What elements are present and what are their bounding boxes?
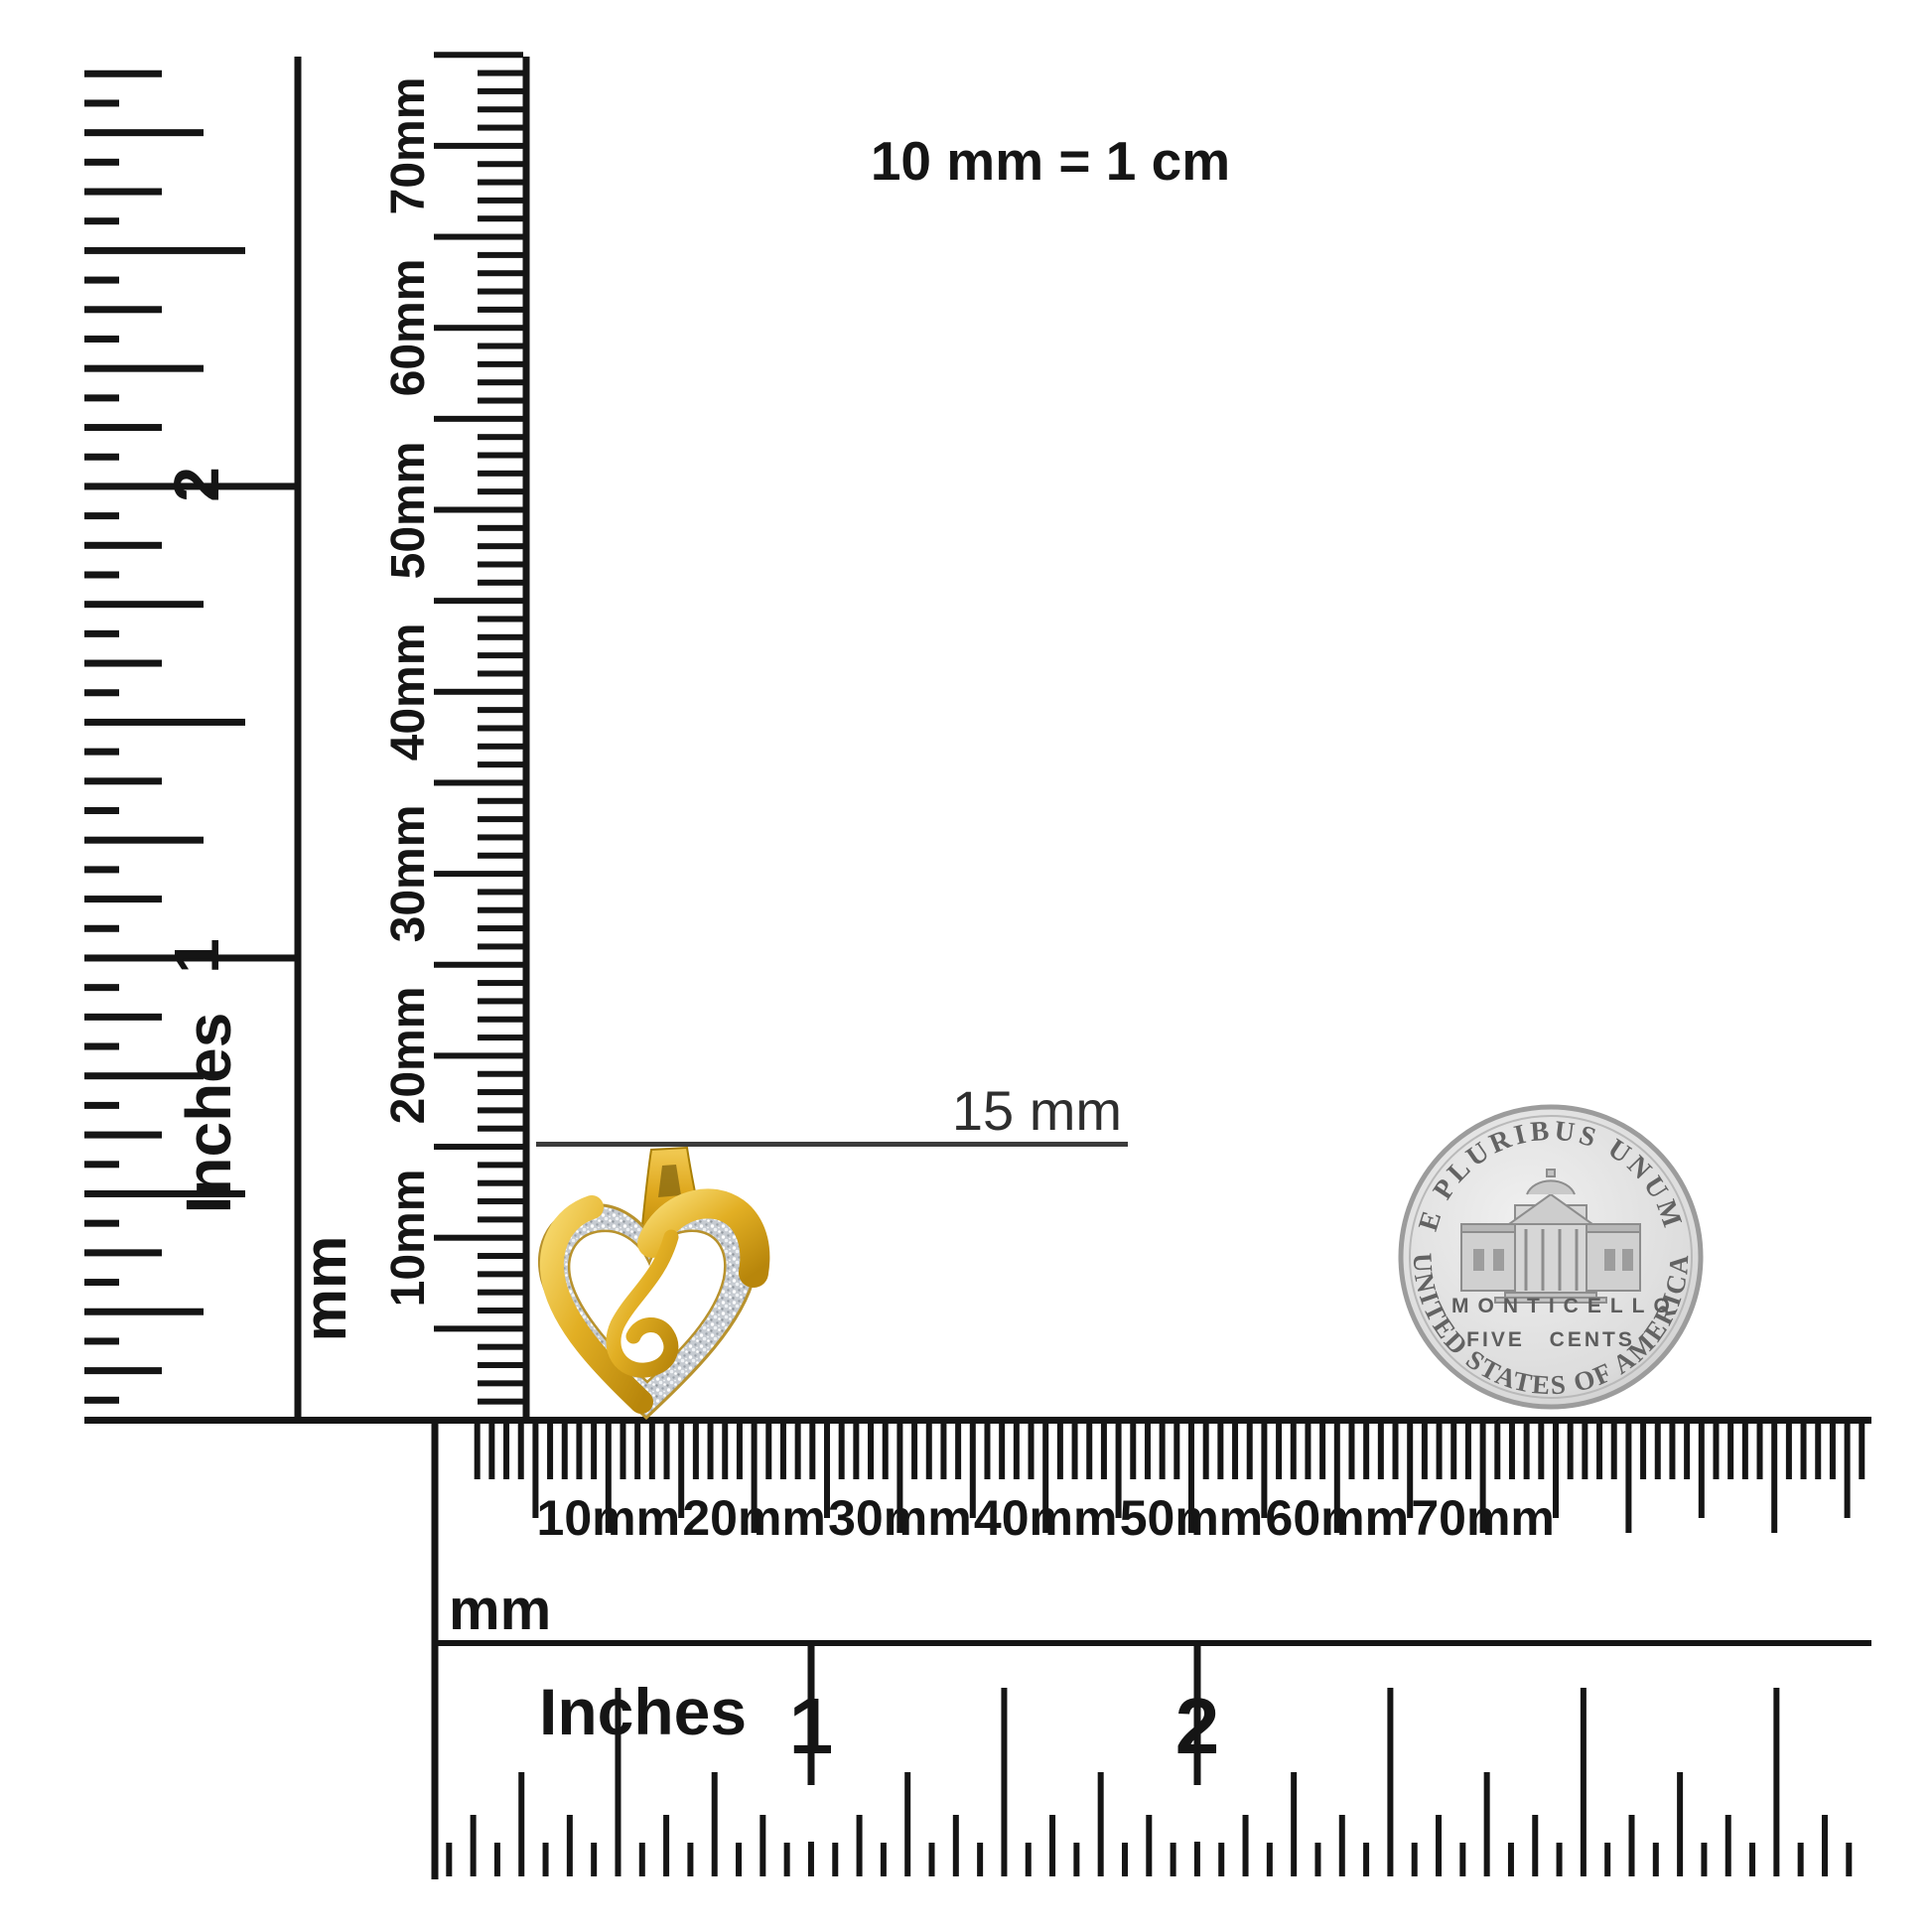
vertical-mm-ruler-tick-label: 60mm (384, 253, 434, 402)
heart-pendant-photo (539, 1148, 757, 1418)
vertical-inch-ruler-unit-label: Inches (178, 984, 239, 1242)
vertical-inch-ruler-number-2: 2 (165, 445, 228, 524)
vertical-mm-ruler-tick-label: 30mm (384, 799, 434, 948)
bottom-inch-ruler-number-2: 2 (1128, 1681, 1267, 1772)
pendant-size-annotation: 15 mm (923, 1078, 1122, 1143)
bottom-inch-ruler-number-1: 1 (742, 1681, 881, 1772)
vertical-mm-ruler-tick-label: 50mm (384, 436, 434, 585)
coin-denomination-label: FIVE CENTS (1451, 1328, 1650, 1352)
measurement-graphics: E PLURIBUS UNUM UNITED STATES OF AMERICA (0, 0, 1932, 1932)
vertical-mm-ruler-tick-label: 10mm (384, 1164, 434, 1312)
vertical-mm-ruler-tick-label: 70mm (384, 71, 434, 220)
bottom-mm-ruler-tick-label: 10mm (524, 1489, 693, 1547)
nickel-coin-photo: E PLURIBUS UNUM UNITED STATES OF AMERICA (1401, 1107, 1701, 1407)
vertical-inch-ruler-number-1: 1 (165, 916, 228, 996)
coin-building-label: MONTICELLO (1451, 1295, 1650, 1318)
bottom-mm-ruler-tick-label: 20mm (670, 1489, 839, 1547)
product-measurement-image: E PLURIBUS UNUM UNITED STATES OF AMERICA… (0, 0, 1932, 1932)
vertical-mm-ruler-unit-label: mm (296, 1229, 355, 1348)
bottom-mm-ruler-tick-label: 60mm (1253, 1489, 1422, 1547)
bottom-mm-ruler-tick-label: 30mm (815, 1489, 984, 1547)
vertical-mm-ruler-tick-label: 20mm (384, 981, 434, 1130)
bottom-inch-ruler-unit-label: Inches (539, 1674, 747, 1749)
bottom-mm-ruler-tick-label: 40mm (961, 1489, 1130, 1547)
bottom-mm-ruler-tick-label: 50mm (1107, 1489, 1276, 1547)
bottom-mm-ruler-unit-label: mm (449, 1577, 551, 1643)
scale-note: 10 mm = 1 cm (802, 129, 1299, 193)
ruler-tick-marks (84, 52, 1871, 1879)
bottom-mm-ruler-tick-label: 70mm (1399, 1489, 1568, 1547)
vertical-mm-ruler-tick-label: 40mm (384, 618, 434, 766)
